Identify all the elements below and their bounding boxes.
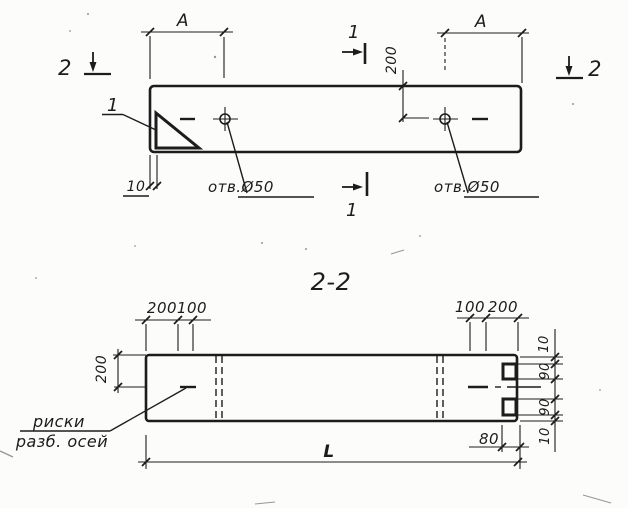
beam-outline-top-view xyxy=(150,86,521,152)
dim-left-200: 200 xyxy=(94,349,146,393)
dim-200-left-value: 200 xyxy=(147,299,177,317)
dim-a-right: A xyxy=(437,12,529,83)
dim-top-left: 200 100 xyxy=(135,299,211,351)
speckle xyxy=(572,103,574,105)
speckle xyxy=(69,30,71,32)
axis-note-line1: риски xyxy=(32,412,85,431)
technical-drawing: 1 A xyxy=(0,0,628,508)
section-view-2-2: 2-2 200 xyxy=(15,268,563,469)
hole-callout-right-text: отв.Ø50 xyxy=(434,178,500,196)
dim-80-value: 80 xyxy=(479,430,499,448)
dim-L-value: L xyxy=(323,442,334,462)
scan-mark xyxy=(391,250,404,254)
dim-a-right-value: A xyxy=(474,12,487,32)
speckle xyxy=(214,56,216,58)
speckle xyxy=(134,245,136,247)
speckle xyxy=(419,235,421,237)
dim-10-bottom-value: 10 xyxy=(538,427,553,445)
dim-100-left-value: 100 xyxy=(177,299,207,317)
hole-right xyxy=(433,107,458,131)
dim-10-top-value: 10 xyxy=(537,335,552,353)
note-leader xyxy=(110,388,186,431)
top-view: 1 A xyxy=(58,11,602,221)
dim-a-left-value: A xyxy=(176,11,189,31)
section-marker-1-bottom: 1 xyxy=(342,172,367,221)
speckle xyxy=(305,248,307,250)
beam-outline-section-view xyxy=(146,355,517,421)
scan-mark xyxy=(583,495,611,503)
cut-arrowhead-icon xyxy=(353,184,363,191)
cut-arrowhead-icon xyxy=(90,62,97,72)
hole-callout-left-text: отв.Ø50 xyxy=(208,178,274,196)
section-1-bottom-label: 1 xyxy=(346,200,358,221)
dim-right-chain: 10 90 90 10 xyxy=(517,329,563,452)
end-notch-upper xyxy=(503,364,516,379)
dim-100-right-value: 100 xyxy=(455,298,485,316)
section-2-left-label: 2 xyxy=(58,56,72,80)
dashed-line-pair-right xyxy=(437,356,443,420)
scan-mark xyxy=(0,451,13,457)
speckle xyxy=(599,389,601,391)
section-marker-2-right: 2 xyxy=(556,56,602,81)
dim-hole-offset-value: 200 xyxy=(384,46,400,74)
dim-wall-10: 10 xyxy=(123,155,161,196)
speckle xyxy=(35,277,37,279)
cut-arrowhead-icon xyxy=(566,66,573,76)
hole-left xyxy=(213,107,238,131)
dim-hole-offset: 200 xyxy=(384,46,429,122)
hole-callout-right: отв.Ø50 xyxy=(434,122,539,197)
dim-90-top-value: 90 xyxy=(538,362,553,380)
section-view-title: 2-2 xyxy=(311,268,352,296)
speckle xyxy=(261,242,263,244)
dim-wall-value: 10 xyxy=(127,179,146,195)
drawing-sheet: 1 A xyxy=(0,0,628,508)
speckle xyxy=(87,13,89,15)
dim-left-200-value: 200 xyxy=(94,355,110,383)
dim-length-L: L xyxy=(138,435,527,469)
scan-mark xyxy=(255,502,275,504)
dim-90-bottom-value: 90 xyxy=(538,398,553,416)
dashed-line-pair-left xyxy=(216,356,222,420)
cut-arrowhead-icon xyxy=(353,49,363,56)
axis-marks-note: риски разб. осей xyxy=(15,388,186,451)
hole-callout-left: отв.Ø50 xyxy=(208,122,314,197)
end-notch-lower xyxy=(503,399,516,415)
detail-ref-callout: 1 xyxy=(102,95,156,130)
section-1-top-label: 1 xyxy=(348,22,360,43)
dim-200-right-value: 200 xyxy=(488,298,518,316)
section-2-right-label: 2 xyxy=(588,57,602,81)
dim-a-left: A xyxy=(141,11,233,79)
detail-ref-label: 1 xyxy=(107,95,119,116)
section-marker-1-top: 1 xyxy=(342,22,365,64)
section-marker-2-left: 2 xyxy=(58,52,111,80)
axis-note-line2: разб. осей xyxy=(15,432,108,451)
dim-top-right: 100 200 xyxy=(455,298,529,351)
